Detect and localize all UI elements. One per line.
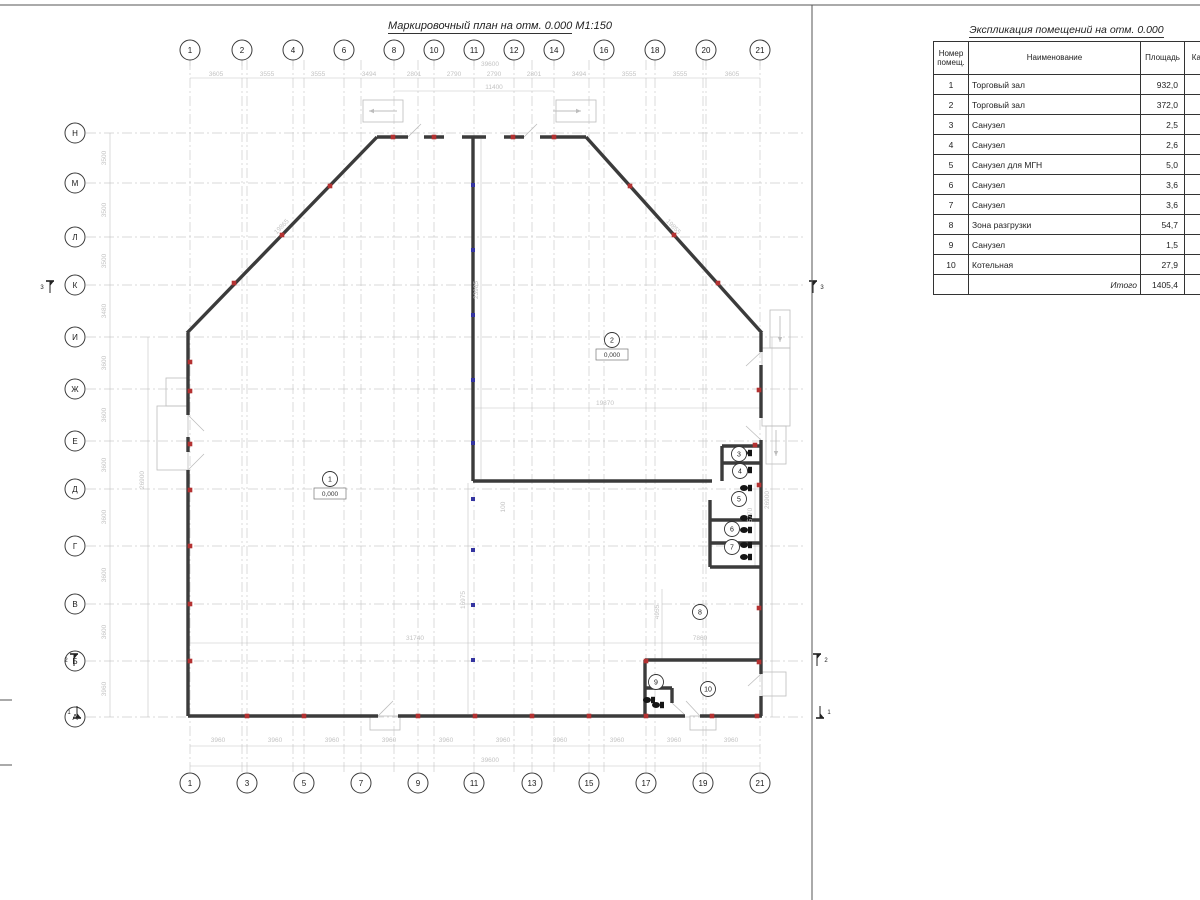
table-row: 2Торговый зал372,0 [934, 95, 1200, 115]
table-cell: 4 [934, 135, 969, 155]
axis-label: 7 [359, 779, 364, 788]
toilet-icon [748, 450, 752, 456]
table-cell: 2 [934, 95, 969, 115]
table-cell: Торговый зал [969, 75, 1141, 95]
dimension-text: 16975 [460, 591, 467, 609]
table-cell: Санузел для МГН [969, 155, 1141, 175]
axis-label: 15 [585, 779, 594, 788]
table-cell: 2,6 [1141, 135, 1185, 155]
table-title: Экспликация помещений на отм. 0.000 [933, 24, 1200, 36]
dimension-text: 2801 [407, 71, 422, 78]
axis-label: 14 [550, 46, 559, 55]
plan-scale: М1:150 [572, 20, 612, 32]
table-cell [1185, 175, 1200, 195]
toilet-icon [740, 485, 748, 491]
red-marker [757, 606, 762, 611]
blue-marker [471, 183, 475, 187]
toilet-icon [748, 554, 752, 560]
toilet-icon [740, 542, 748, 548]
axis-label: 9 [416, 779, 421, 788]
dimension-text: 39600 [481, 61, 499, 68]
table-cell [1185, 115, 1200, 135]
blue-marker [471, 441, 475, 445]
blue-marker [471, 548, 475, 552]
axis-label: 11 [470, 46, 479, 55]
table-cell: 8 [934, 215, 969, 235]
table-row: Итого1405,4 [934, 275, 1200, 295]
red-marker [391, 135, 396, 140]
table-header: Площадь [1141, 42, 1185, 75]
toilet-icon [748, 527, 752, 533]
table-cell [1185, 75, 1200, 95]
axis-label: Е [72, 437, 77, 446]
room-number: 10 [704, 687, 712, 694]
toilet-icon [748, 467, 752, 473]
dimension-text: 3960 [610, 737, 625, 744]
dimension-text: 3960 [382, 737, 397, 744]
axis-label: 10 [430, 46, 439, 55]
dimension-text: 3555 [622, 71, 637, 78]
dimension-text: 3960 [101, 681, 108, 696]
table-cell: 9 [934, 235, 969, 255]
table-cell: Санузел [969, 115, 1141, 135]
room-number: 7 [730, 545, 734, 552]
table-row: 10Котельная27,9 [934, 255, 1200, 275]
axis-label: 5 [302, 779, 307, 788]
table-cell [1185, 135, 1200, 155]
section-markers: 332211 [40, 281, 831, 718]
table-header: Кат. пом [1185, 42, 1200, 75]
dimension-text: 3605 [725, 71, 740, 78]
table-row: 3Санузел2,5 [934, 115, 1200, 135]
red-marker [628, 184, 633, 189]
red-marker [716, 281, 721, 286]
red-marker [245, 714, 250, 719]
table-cell: Зона разгрузки [969, 215, 1141, 235]
table-cell: 1,5 [1141, 235, 1185, 255]
table-cell [1185, 235, 1200, 255]
section-label: 3 [40, 285, 44, 291]
table-title-text: Экспликация помещений на отм. 0.000 [969, 24, 1163, 38]
dimension-text: 3555 [260, 71, 275, 78]
dimension-text: 7860 [693, 635, 708, 642]
table-cell: 27,9 [1141, 255, 1185, 275]
axis-label: Г [73, 542, 78, 551]
grid-lines [86, 60, 805, 773]
red-marker [710, 714, 715, 719]
dimension-text: 3494 [572, 71, 587, 78]
dimension-text: 3960 [325, 737, 340, 744]
dimension-text: 3600 [101, 407, 108, 422]
axis-label: 3 [245, 779, 250, 788]
table-row: 9Санузел1,5 [934, 235, 1200, 255]
axis-label: 21 [756, 46, 765, 55]
red-marker [188, 442, 193, 447]
red-marker [188, 360, 193, 365]
table-header: Наименование [969, 42, 1141, 75]
dimension-text: 3605 [209, 71, 224, 78]
axis-label: 20 [702, 46, 711, 55]
table-cell [1185, 155, 1200, 175]
toilet-icon [652, 702, 660, 708]
axis-label: Ж [71, 385, 79, 394]
red-marker [302, 714, 307, 719]
table-row: 1Торговый зал932,0 [934, 75, 1200, 95]
blue-marker [471, 603, 475, 607]
section-label: 2 [824, 658, 828, 664]
plan-title-text: Маркировочный план на отм. 0.000 [388, 20, 572, 34]
dimension-text: 3500 [101, 202, 108, 217]
table-cell: Итого [969, 275, 1141, 295]
dimension-text: 3960 [553, 737, 568, 744]
table-cell: Санузел [969, 175, 1141, 195]
room-number: 6 [730, 527, 734, 534]
axis-label: Д [72, 485, 78, 494]
red-marker [432, 135, 437, 140]
red-marker [473, 714, 478, 719]
red-marker [757, 483, 762, 488]
dimension-text: 3600 [101, 509, 108, 524]
table-cell: 372,0 [1141, 95, 1185, 115]
table-cell [1185, 195, 1200, 215]
axis-label: 13 [528, 779, 537, 788]
table-row: 5Санузел для МГН5,0 [934, 155, 1200, 175]
axis-label: 2 [240, 46, 245, 55]
axis-label: 1 [188, 779, 193, 788]
table-row: 8Зона разгрузки54,7 [934, 215, 1200, 235]
red-marker [644, 659, 649, 664]
axis-label: В [72, 600, 77, 609]
red-marker [644, 714, 649, 719]
dimension-text: 3960 [268, 737, 283, 744]
level-value: 0,000 [604, 352, 621, 359]
dimension-text: 23985 [473, 281, 480, 299]
axis-label: Б [72, 657, 77, 666]
table-cell: Санузел [969, 195, 1141, 215]
red-marker [188, 659, 193, 664]
axis-label: 19 [699, 779, 708, 788]
axis-label: К [73, 281, 78, 290]
drawing-sheet: 3605355535553494280127902790280134943555… [0, 0, 1200, 900]
red-marker [552, 135, 557, 140]
table-cell [934, 275, 969, 295]
red-marker [232, 281, 237, 286]
table-cell: 3,6 [1141, 195, 1185, 215]
table-cell: 3,6 [1141, 175, 1185, 195]
dimension-text: 26900 [764, 491, 771, 509]
table-cell [1185, 275, 1200, 295]
toilet-icon [740, 527, 748, 533]
table-cell [1185, 215, 1200, 235]
dimension-text: 3600 [101, 567, 108, 582]
red-marker [188, 488, 193, 493]
room-number: 3 [737, 452, 741, 459]
dimension-text: 2790 [487, 71, 502, 78]
axis-label: Н [72, 129, 78, 138]
axis-label: 17 [642, 779, 651, 788]
red-marker [530, 714, 535, 719]
axis-label: 11 [470, 779, 479, 788]
table-row: 7Санузел3,6 [934, 195, 1200, 215]
dimension-lines [110, 78, 772, 766]
dimension-text: 19870 [596, 400, 614, 407]
dimension-text: 2790 [447, 71, 462, 78]
table-cell: 3 [934, 115, 969, 135]
dimension-text: 3960 [211, 737, 226, 744]
toilet-icon [740, 554, 748, 560]
room-number: 4 [738, 469, 742, 476]
dimension-text: 2801 [527, 71, 542, 78]
axis-label: 8 [392, 46, 397, 55]
level-value: 0,000 [322, 491, 339, 498]
table-cell: 5 [934, 155, 969, 175]
table-cell: 1 [934, 75, 969, 95]
dimension-text: 39600 [481, 757, 499, 764]
red-marker [753, 443, 758, 448]
room-number: 1 [328, 477, 332, 484]
dimension-text: 100 [500, 501, 507, 512]
axis-label: И [72, 333, 78, 342]
axis-label: 16 [600, 46, 609, 55]
dimension-text: 3500 [101, 150, 108, 165]
dimension-text: 3960 [439, 737, 454, 744]
red-marker [416, 714, 421, 719]
table-cell: Санузел [969, 235, 1141, 255]
axis-label: 18 [651, 46, 660, 55]
dimension-text: 26900 [139, 471, 146, 489]
blue-marker [471, 248, 475, 252]
dimension-text: 3960 [496, 737, 511, 744]
axis-label: 6 [342, 46, 347, 55]
table-cell: 6 [934, 175, 969, 195]
table-cell: Котельная [969, 255, 1141, 275]
section-label: 1 [827, 710, 831, 716]
room-number: 9 [654, 680, 658, 687]
toilet-icon [660, 702, 664, 708]
toilet-icon [748, 485, 752, 491]
table-cell: 10 [934, 255, 969, 275]
toilet-fixtures [643, 450, 752, 708]
room-number: 8 [698, 610, 702, 617]
red-marker [757, 388, 762, 393]
dimension-text: 3480 [101, 303, 108, 318]
red-marker [328, 184, 333, 189]
room-number: 2 [610, 338, 614, 345]
dimension-text: 3600 [101, 457, 108, 472]
room-number: 5 [737, 497, 741, 504]
red-marker [188, 602, 193, 607]
dimension-text: 3555 [311, 71, 326, 78]
dimension-text: 4955 [654, 604, 661, 619]
table-row: 4Санузел2,6 [934, 135, 1200, 155]
table-cell [1185, 255, 1200, 275]
table-cell: 2,5 [1141, 115, 1185, 135]
axis-label: М [72, 179, 79, 188]
red-marker [188, 544, 193, 549]
axis-label: 21 [756, 779, 765, 788]
room-labels: 10,00020,000345678910 [314, 333, 748, 697]
red-marker [587, 714, 592, 719]
red-marker [757, 660, 762, 665]
table-row: 6Санузел3,6 [934, 175, 1200, 195]
dimension-text: 3500 [101, 253, 108, 268]
dimension-text: 3600 [101, 624, 108, 639]
room-schedule: Экспликация помещений на отм. 0.000 Номе… [933, 24, 1200, 295]
blue-marker [471, 313, 475, 317]
red-marker [511, 135, 516, 140]
toilet-icon [651, 697, 655, 703]
dimension-text: 3960 [667, 737, 682, 744]
toilet-icon [643, 697, 651, 703]
table-cell: Торговый зал [969, 95, 1141, 115]
dimension-text: 31740 [406, 635, 424, 642]
section-label: 3 [820, 285, 824, 291]
axis-label: Л [72, 233, 77, 242]
table-header: Номер помещ. [934, 42, 969, 75]
dimension-text: 5770 [747, 507, 754, 522]
red-marker [188, 389, 193, 394]
table-cell [1185, 95, 1200, 115]
axis-bubbles: 12468101112141618202113579111315171921НМ… [65, 40, 770, 793]
plan-title: Маркировочный план на отм. 0.000 М1:150 [300, 20, 700, 32]
dimension-text: 11400 [485, 84, 503, 91]
axis-label: 12 [510, 46, 519, 55]
table-header-row: Номер помещ.НаименованиеПлощадьКат. пом [934, 42, 1200, 75]
table-cell: 1405,4 [1141, 275, 1185, 295]
room-table: Номер помещ.НаименованиеПлощадьКат. пом … [933, 41, 1200, 295]
red-marker [755, 714, 760, 719]
dimension-text: 3960 [724, 737, 739, 744]
table-cell: 54,7 [1141, 215, 1185, 235]
blue-marker [471, 497, 475, 501]
blue-marker [471, 658, 475, 662]
table-cell: 932,0 [1141, 75, 1185, 95]
blue-marker [471, 378, 475, 382]
toilet-icon [748, 542, 752, 548]
table-cell: 5,0 [1141, 155, 1185, 175]
axis-label: 1 [188, 46, 193, 55]
dimension-text: 3555 [673, 71, 688, 78]
dimension-text: 3600 [101, 355, 108, 370]
axis-label: 4 [291, 46, 296, 55]
table-cell: 7 [934, 195, 969, 215]
dimension-text: 3494 [362, 71, 377, 78]
table-cell: Санузел [969, 135, 1141, 155]
